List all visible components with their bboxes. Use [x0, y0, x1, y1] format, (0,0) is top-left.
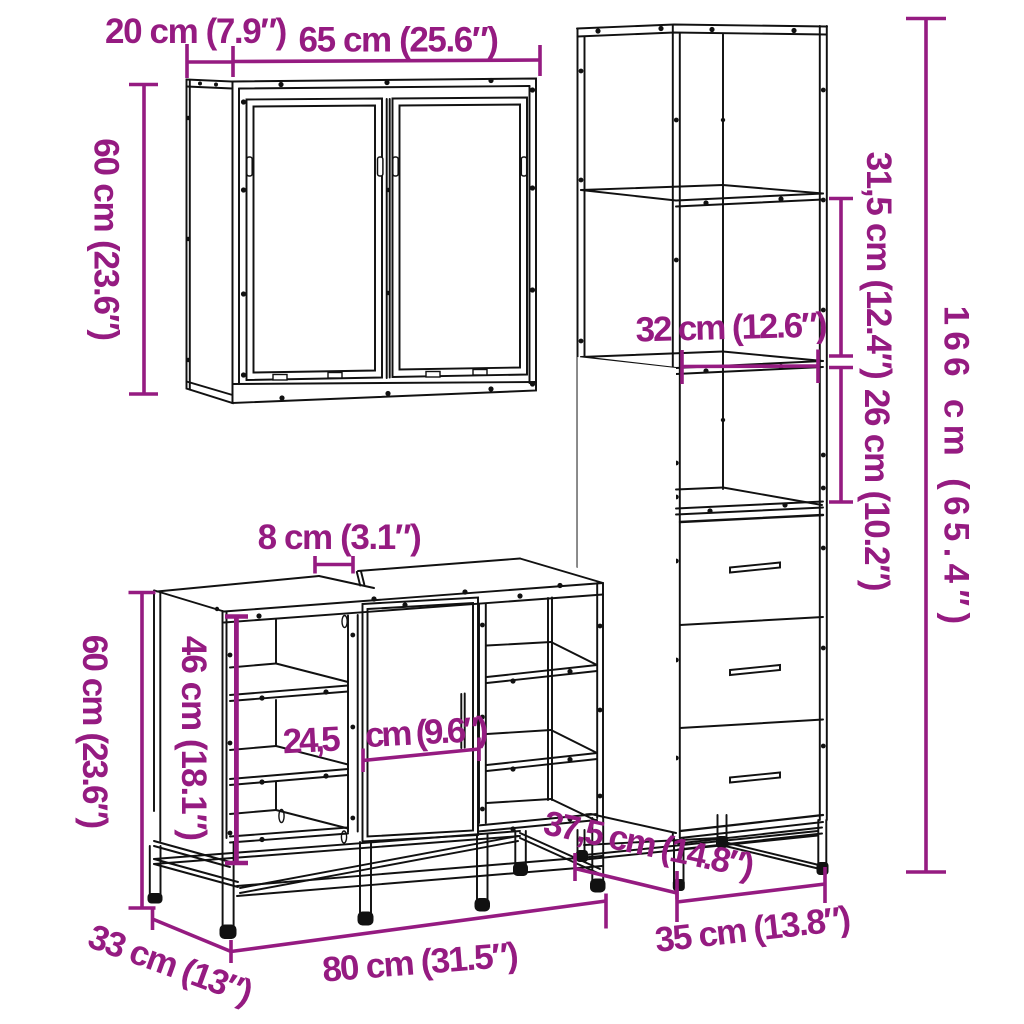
svg-text:cm (9.6″): cm (9.6″): [364, 710, 488, 755]
svg-text:8 cm (3.1″): 8 cm (3.1″): [258, 518, 421, 557]
svg-text:60 cm (23.6″): 60 cm (23.6″): [87, 138, 126, 340]
svg-text:166 cm (65.4″): 166 cm (65.4″): [937, 306, 976, 631]
svg-text:65 cm (25.6″): 65 cm (25.6″): [299, 21, 498, 60]
svg-text:31,5 cm (12.4″): 31,5 cm (12.4″): [859, 152, 898, 379]
svg-text:60 cm (23.6″): 60 cm (23.6″): [75, 635, 114, 828]
svg-text:20 cm (7.9″): 20 cm (7.9″): [105, 12, 286, 51]
svg-text:26 cm (10.2″): 26 cm (10.2″): [857, 389, 896, 591]
svg-text:24,5: 24,5: [282, 719, 341, 761]
svg-text:32 cm (12.6″): 32 cm (12.6″): [635, 305, 826, 349]
svg-text:46 cm (18.1″): 46 cm (18.1″): [174, 636, 213, 840]
